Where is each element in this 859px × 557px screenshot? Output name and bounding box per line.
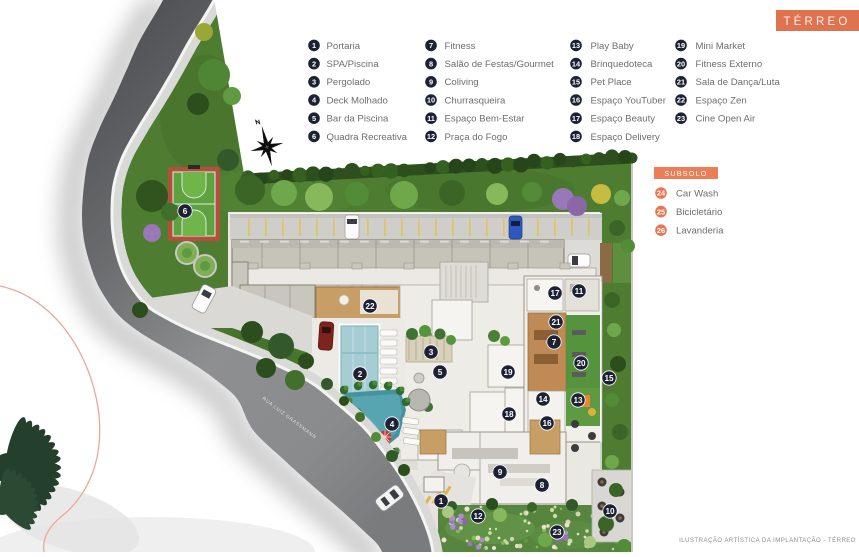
- svg-text:16: 16: [572, 96, 580, 105]
- svg-text:12: 12: [473, 512, 483, 521]
- svg-text:9: 9: [498, 468, 503, 477]
- svg-text:24: 24: [657, 189, 666, 198]
- svg-text:Cine Open Air: Cine Open Air: [696, 114, 757, 125]
- svg-text:21: 21: [677, 78, 685, 87]
- svg-text:Churrasqueira: Churrasqueira: [445, 95, 506, 106]
- svg-text:Espaço Bem-Estar: Espaço Bem-Estar: [445, 114, 526, 125]
- svg-text:Fitness: Fitness: [445, 41, 476, 52]
- svg-text:22: 22: [677, 96, 685, 105]
- svg-text:8: 8: [429, 59, 433, 68]
- svg-text:ILUSTRAÇÃO ARTÍSTICA DA IMPLAN: ILUSTRAÇÃO ARTÍSTICA DA IMPLANTAÇÃO - TÉ…: [679, 537, 856, 544]
- svg-text:20: 20: [677, 59, 685, 68]
- svg-text:17: 17: [572, 114, 580, 123]
- svg-text:Sala de Dança/Luta: Sala de Dança/Luta: [696, 77, 781, 88]
- svg-text:TÉRREO: TÉRREO: [783, 15, 850, 28]
- svg-text:2: 2: [312, 59, 316, 68]
- svg-text:Bar da Piscina: Bar da Piscina: [327, 114, 390, 125]
- svg-text:Bicicletário: Bicicletário: [676, 207, 722, 218]
- svg-text:Lavanderia: Lavanderia: [676, 226, 724, 237]
- svg-text:7: 7: [552, 338, 557, 347]
- svg-text:Pet Place: Pet Place: [591, 77, 632, 88]
- svg-text:3: 3: [429, 348, 434, 357]
- svg-text:4: 4: [390, 420, 395, 429]
- svg-text:23: 23: [677, 114, 685, 123]
- svg-text:13: 13: [573, 396, 583, 405]
- svg-text:SUBSOLO: SUBSOLO: [664, 169, 707, 178]
- svg-text:Espaço Beauty: Espaço Beauty: [591, 114, 656, 125]
- svg-text:9: 9: [429, 78, 433, 87]
- svg-text:Espaço Delivery: Espaço Delivery: [591, 132, 661, 143]
- svg-text:Espaço YouTuber: Espaço YouTuber: [591, 95, 667, 106]
- svg-text:Deck Molhado: Deck Molhado: [327, 95, 388, 106]
- svg-text:18: 18: [504, 410, 514, 419]
- svg-text:19: 19: [503, 368, 513, 377]
- svg-text:Portaria: Portaria: [327, 41, 361, 52]
- svg-text:26: 26: [657, 226, 665, 235]
- svg-text:18: 18: [572, 132, 580, 141]
- svg-text:Coliving: Coliving: [445, 77, 479, 88]
- svg-text:14: 14: [572, 59, 581, 68]
- svg-text:6: 6: [312, 132, 316, 141]
- svg-text:Praça do Fogo: Praça do Fogo: [445, 132, 508, 143]
- svg-text:15: 15: [572, 78, 580, 87]
- svg-text:Salão de Festas/Gourmet: Salão de Festas/Gourmet: [445, 59, 555, 70]
- svg-text:SPA/Piscina: SPA/Piscina: [327, 59, 380, 70]
- svg-text:23: 23: [552, 528, 562, 537]
- svg-text:Brinquedoteca: Brinquedoteca: [591, 59, 654, 70]
- svg-text:Car Wash: Car Wash: [676, 188, 718, 199]
- svg-text:Mini Market: Mini Market: [696, 41, 746, 52]
- svg-text:3: 3: [312, 78, 316, 87]
- svg-text:5: 5: [438, 368, 443, 377]
- svg-text:19: 19: [677, 41, 685, 50]
- svg-text:1: 1: [312, 41, 316, 50]
- svg-text:7: 7: [429, 41, 433, 50]
- svg-text:15: 15: [604, 374, 614, 383]
- svg-text:14: 14: [538, 395, 548, 404]
- svg-text:12: 12: [427, 132, 435, 141]
- svg-text:20: 20: [576, 359, 586, 368]
- svg-text:Pergolado: Pergolado: [327, 77, 371, 88]
- svg-text:11: 11: [427, 114, 435, 123]
- svg-text:6: 6: [183, 207, 188, 216]
- svg-text:10: 10: [605, 507, 615, 516]
- svg-text:11: 11: [575, 287, 584, 296]
- svg-text:21: 21: [551, 318, 561, 327]
- svg-text:Fitness Externo: Fitness Externo: [696, 59, 763, 70]
- svg-text:Quadra Recreativa: Quadra Recreativa: [327, 132, 408, 143]
- svg-text:1: 1: [439, 497, 444, 506]
- svg-text:2: 2: [358, 370, 363, 379]
- svg-text:17: 17: [550, 289, 560, 298]
- svg-text:16: 16: [542, 419, 552, 428]
- svg-text:Espaço Zen: Espaço Zen: [696, 95, 747, 106]
- svg-text:5: 5: [312, 114, 316, 123]
- svg-text:Play Baby: Play Baby: [591, 41, 634, 52]
- svg-text:10: 10: [427, 96, 435, 105]
- svg-text:22: 22: [365, 302, 375, 311]
- svg-text:13: 13: [572, 41, 580, 50]
- svg-text:8: 8: [540, 481, 545, 490]
- svg-text:25: 25: [657, 207, 665, 216]
